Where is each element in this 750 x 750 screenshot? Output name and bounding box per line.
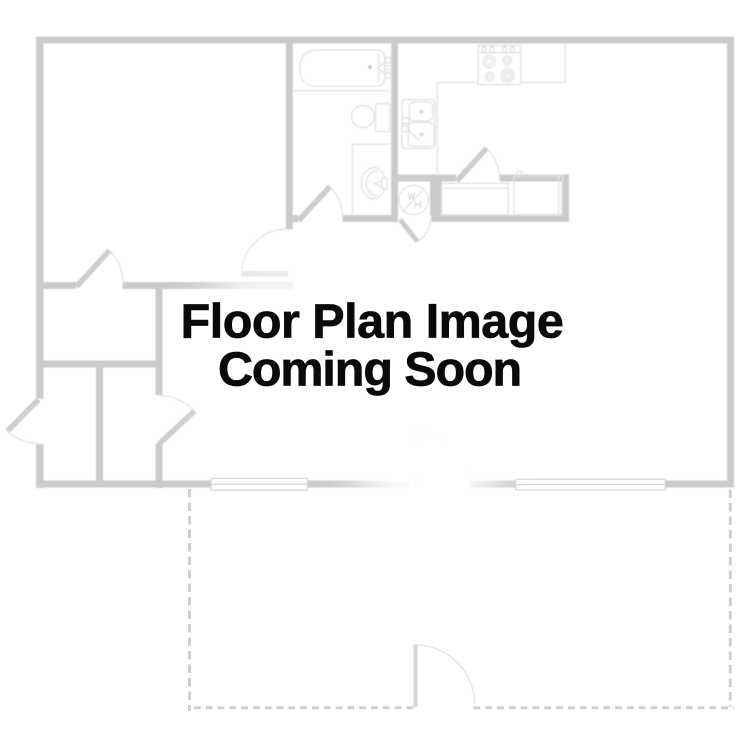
svg-text:Coming Soon: Coming Soon [218,342,521,396]
svg-text:Floor Plan Image: Floor Plan Image [181,295,564,349]
